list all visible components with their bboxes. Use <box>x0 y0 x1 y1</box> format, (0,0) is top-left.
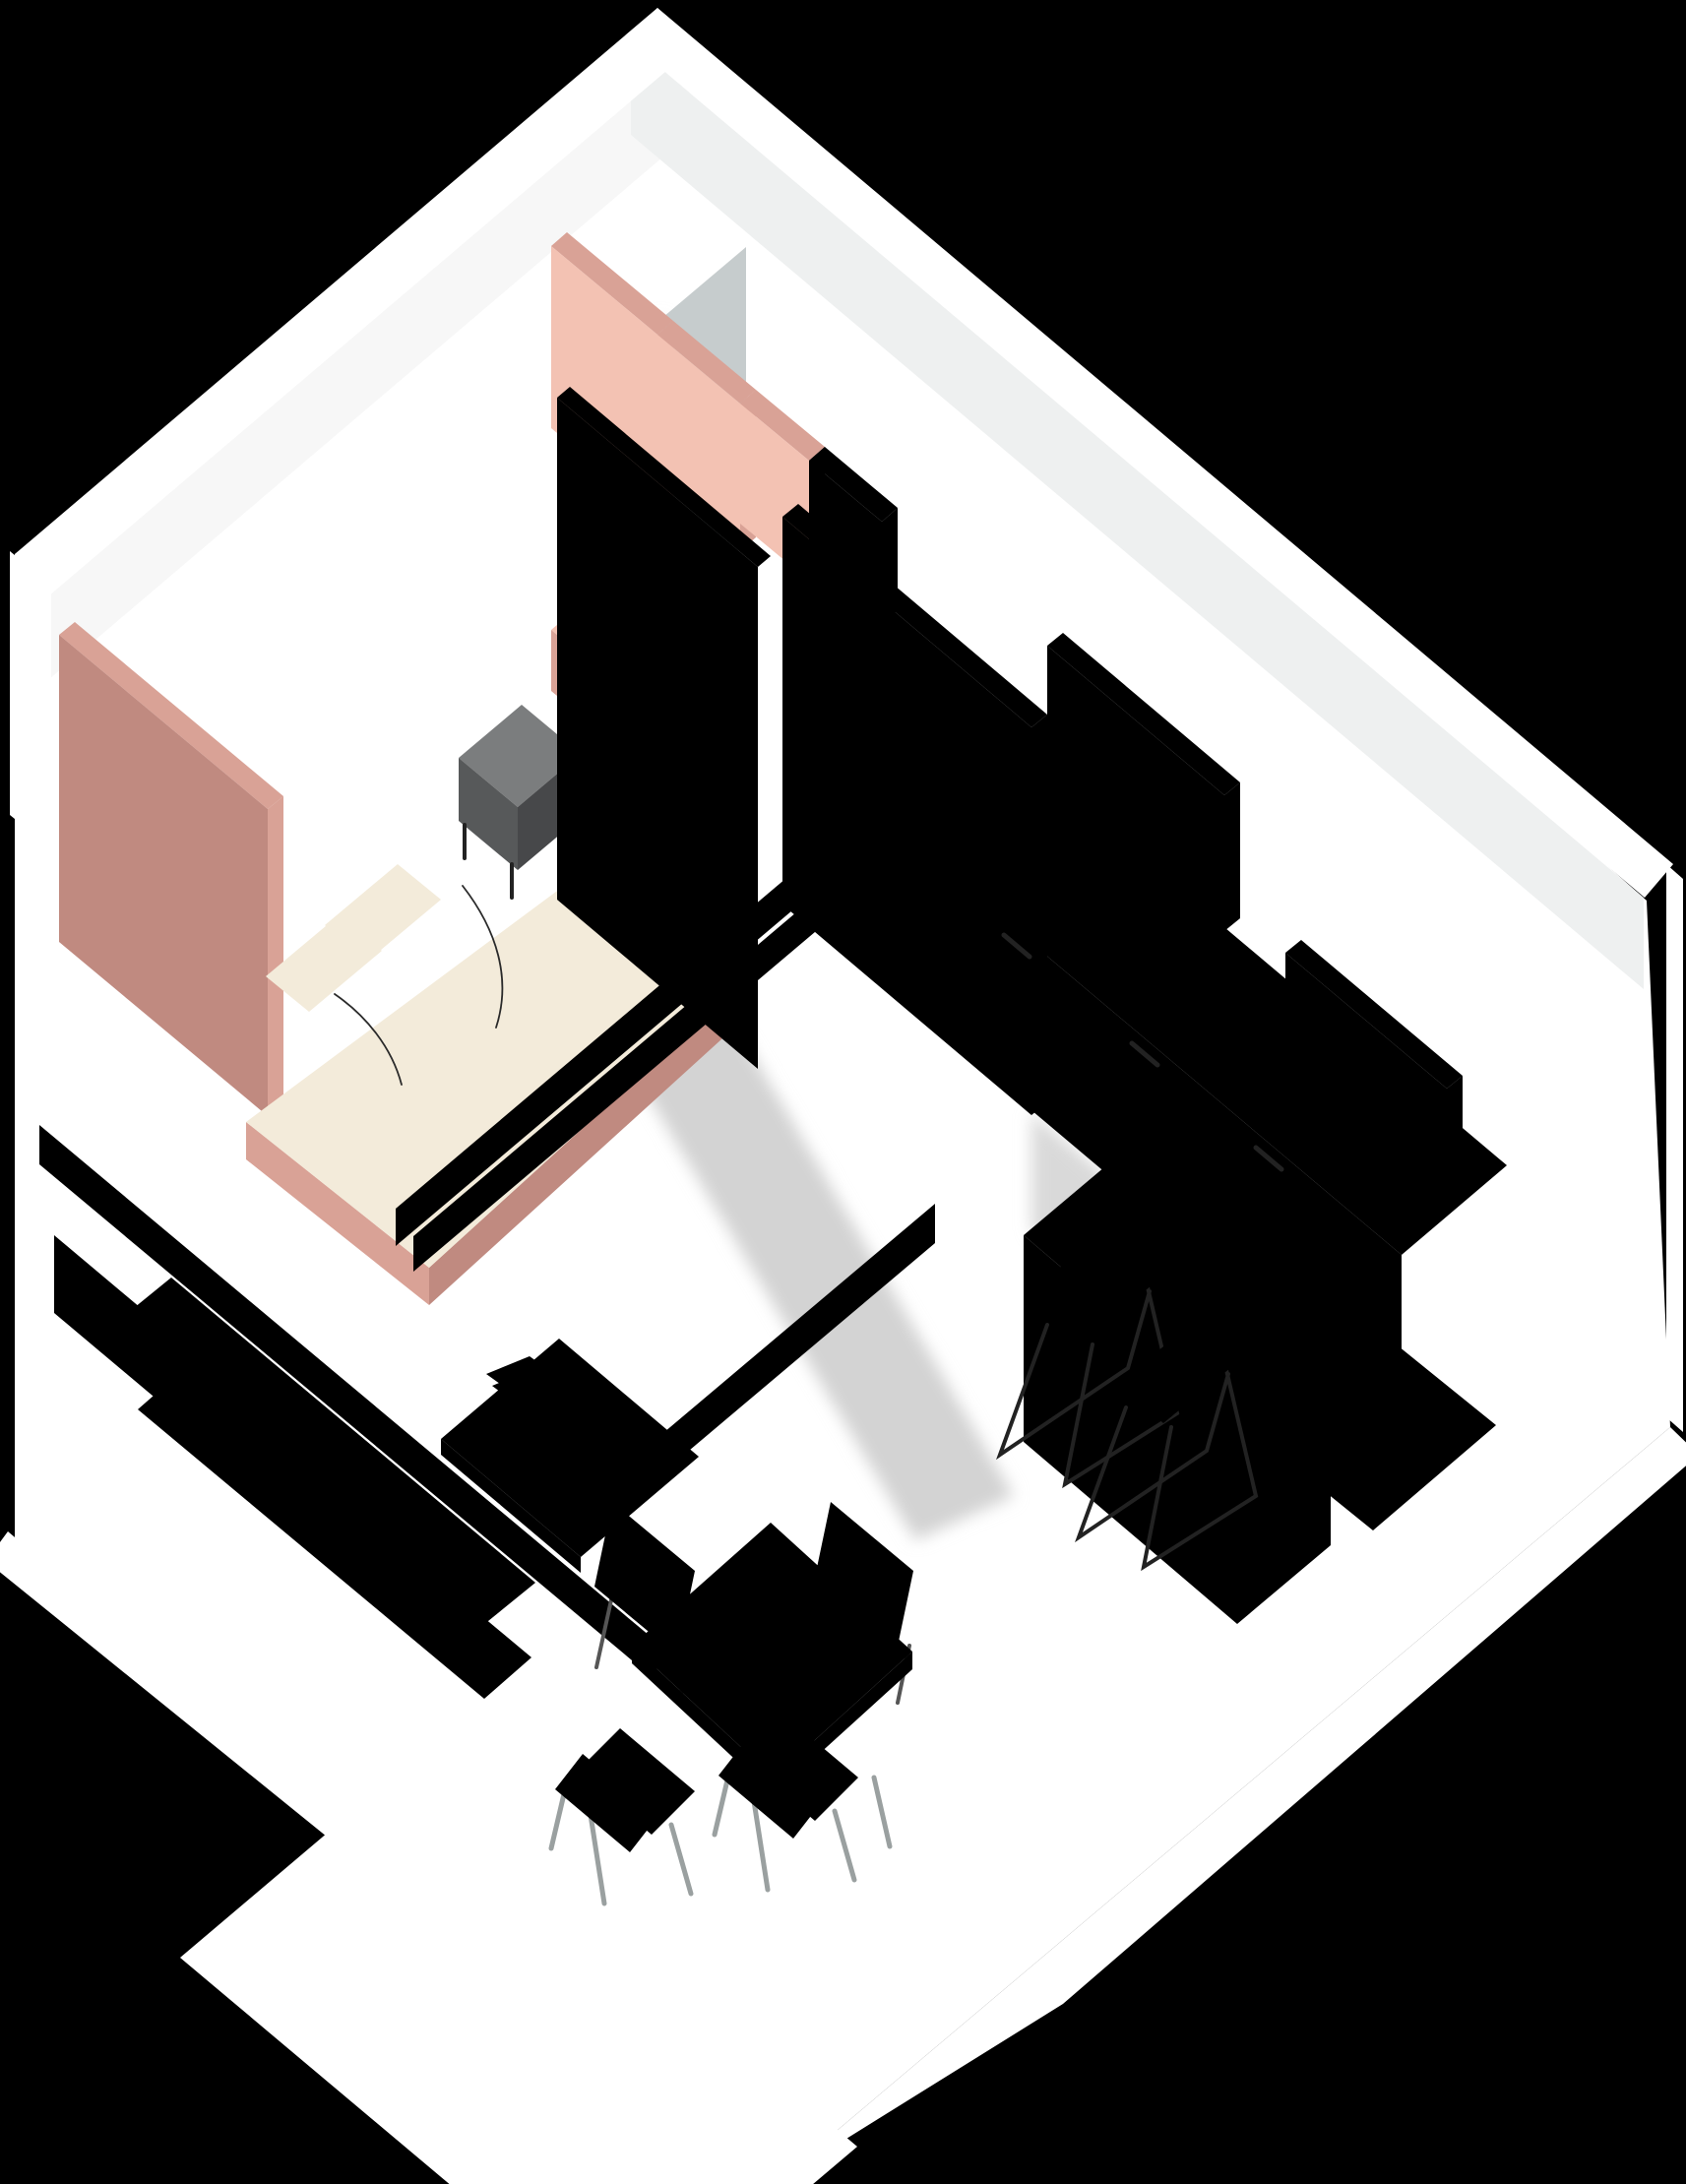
upper-cab-side <box>1224 782 1240 931</box>
east-corner-strip <box>1666 864 1683 1432</box>
vase-1-neck <box>1225 1273 1247 1286</box>
apartment-axonometric <box>0 0 1686 2184</box>
scene-canvas <box>0 0 1686 2184</box>
vase-1-body <box>1218 1284 1254 1310</box>
west-corner-post <box>10 551 51 848</box>
round-sink-basin <box>1338 1066 1414 1117</box>
vase-2-neck <box>1201 1316 1224 1330</box>
headboard-side <box>268 796 283 1116</box>
